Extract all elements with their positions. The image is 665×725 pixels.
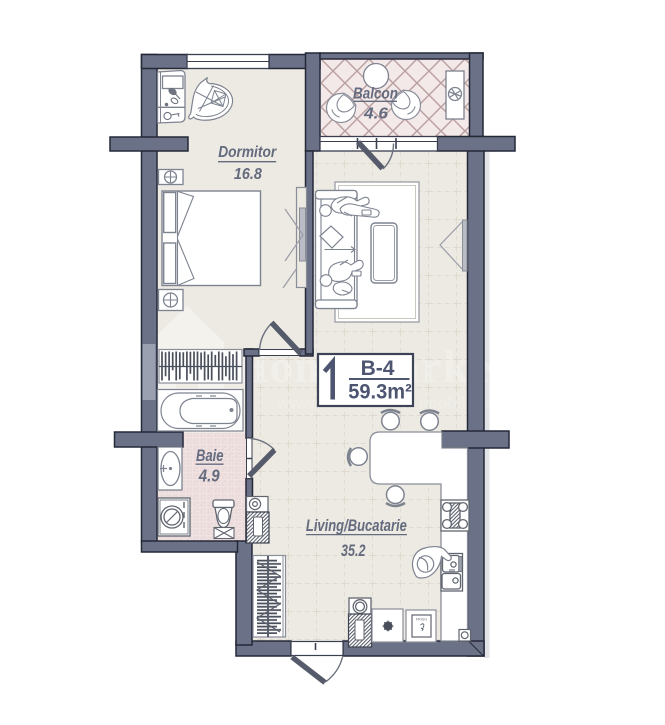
svg-text:4.9: 4.9 — [198, 466, 220, 486]
svg-text:16.8: 16.8 — [234, 166, 262, 183]
svg-text:B-4: B-4 — [361, 357, 395, 380]
svg-text:Balcon: Balcon — [353, 86, 398, 103]
svg-text:35.2: 35.2 — [341, 541, 366, 560]
svg-text:Homemarket&Co: Homemarket&Co — [232, 341, 608, 393]
svg-text:Baie: Baie — [196, 446, 224, 465]
svg-text:Dormitor: Dormitor — [218, 144, 277, 161]
svg-text:Living/Bucatarie: Living/Bucatarie — [306, 517, 407, 535]
svg-text:4.6: 4.6 — [363, 106, 389, 123]
svg-text:FRIGO: FRIGO — [416, 618, 428, 622]
svg-text:59.3m²: 59.3m² — [348, 381, 412, 404]
